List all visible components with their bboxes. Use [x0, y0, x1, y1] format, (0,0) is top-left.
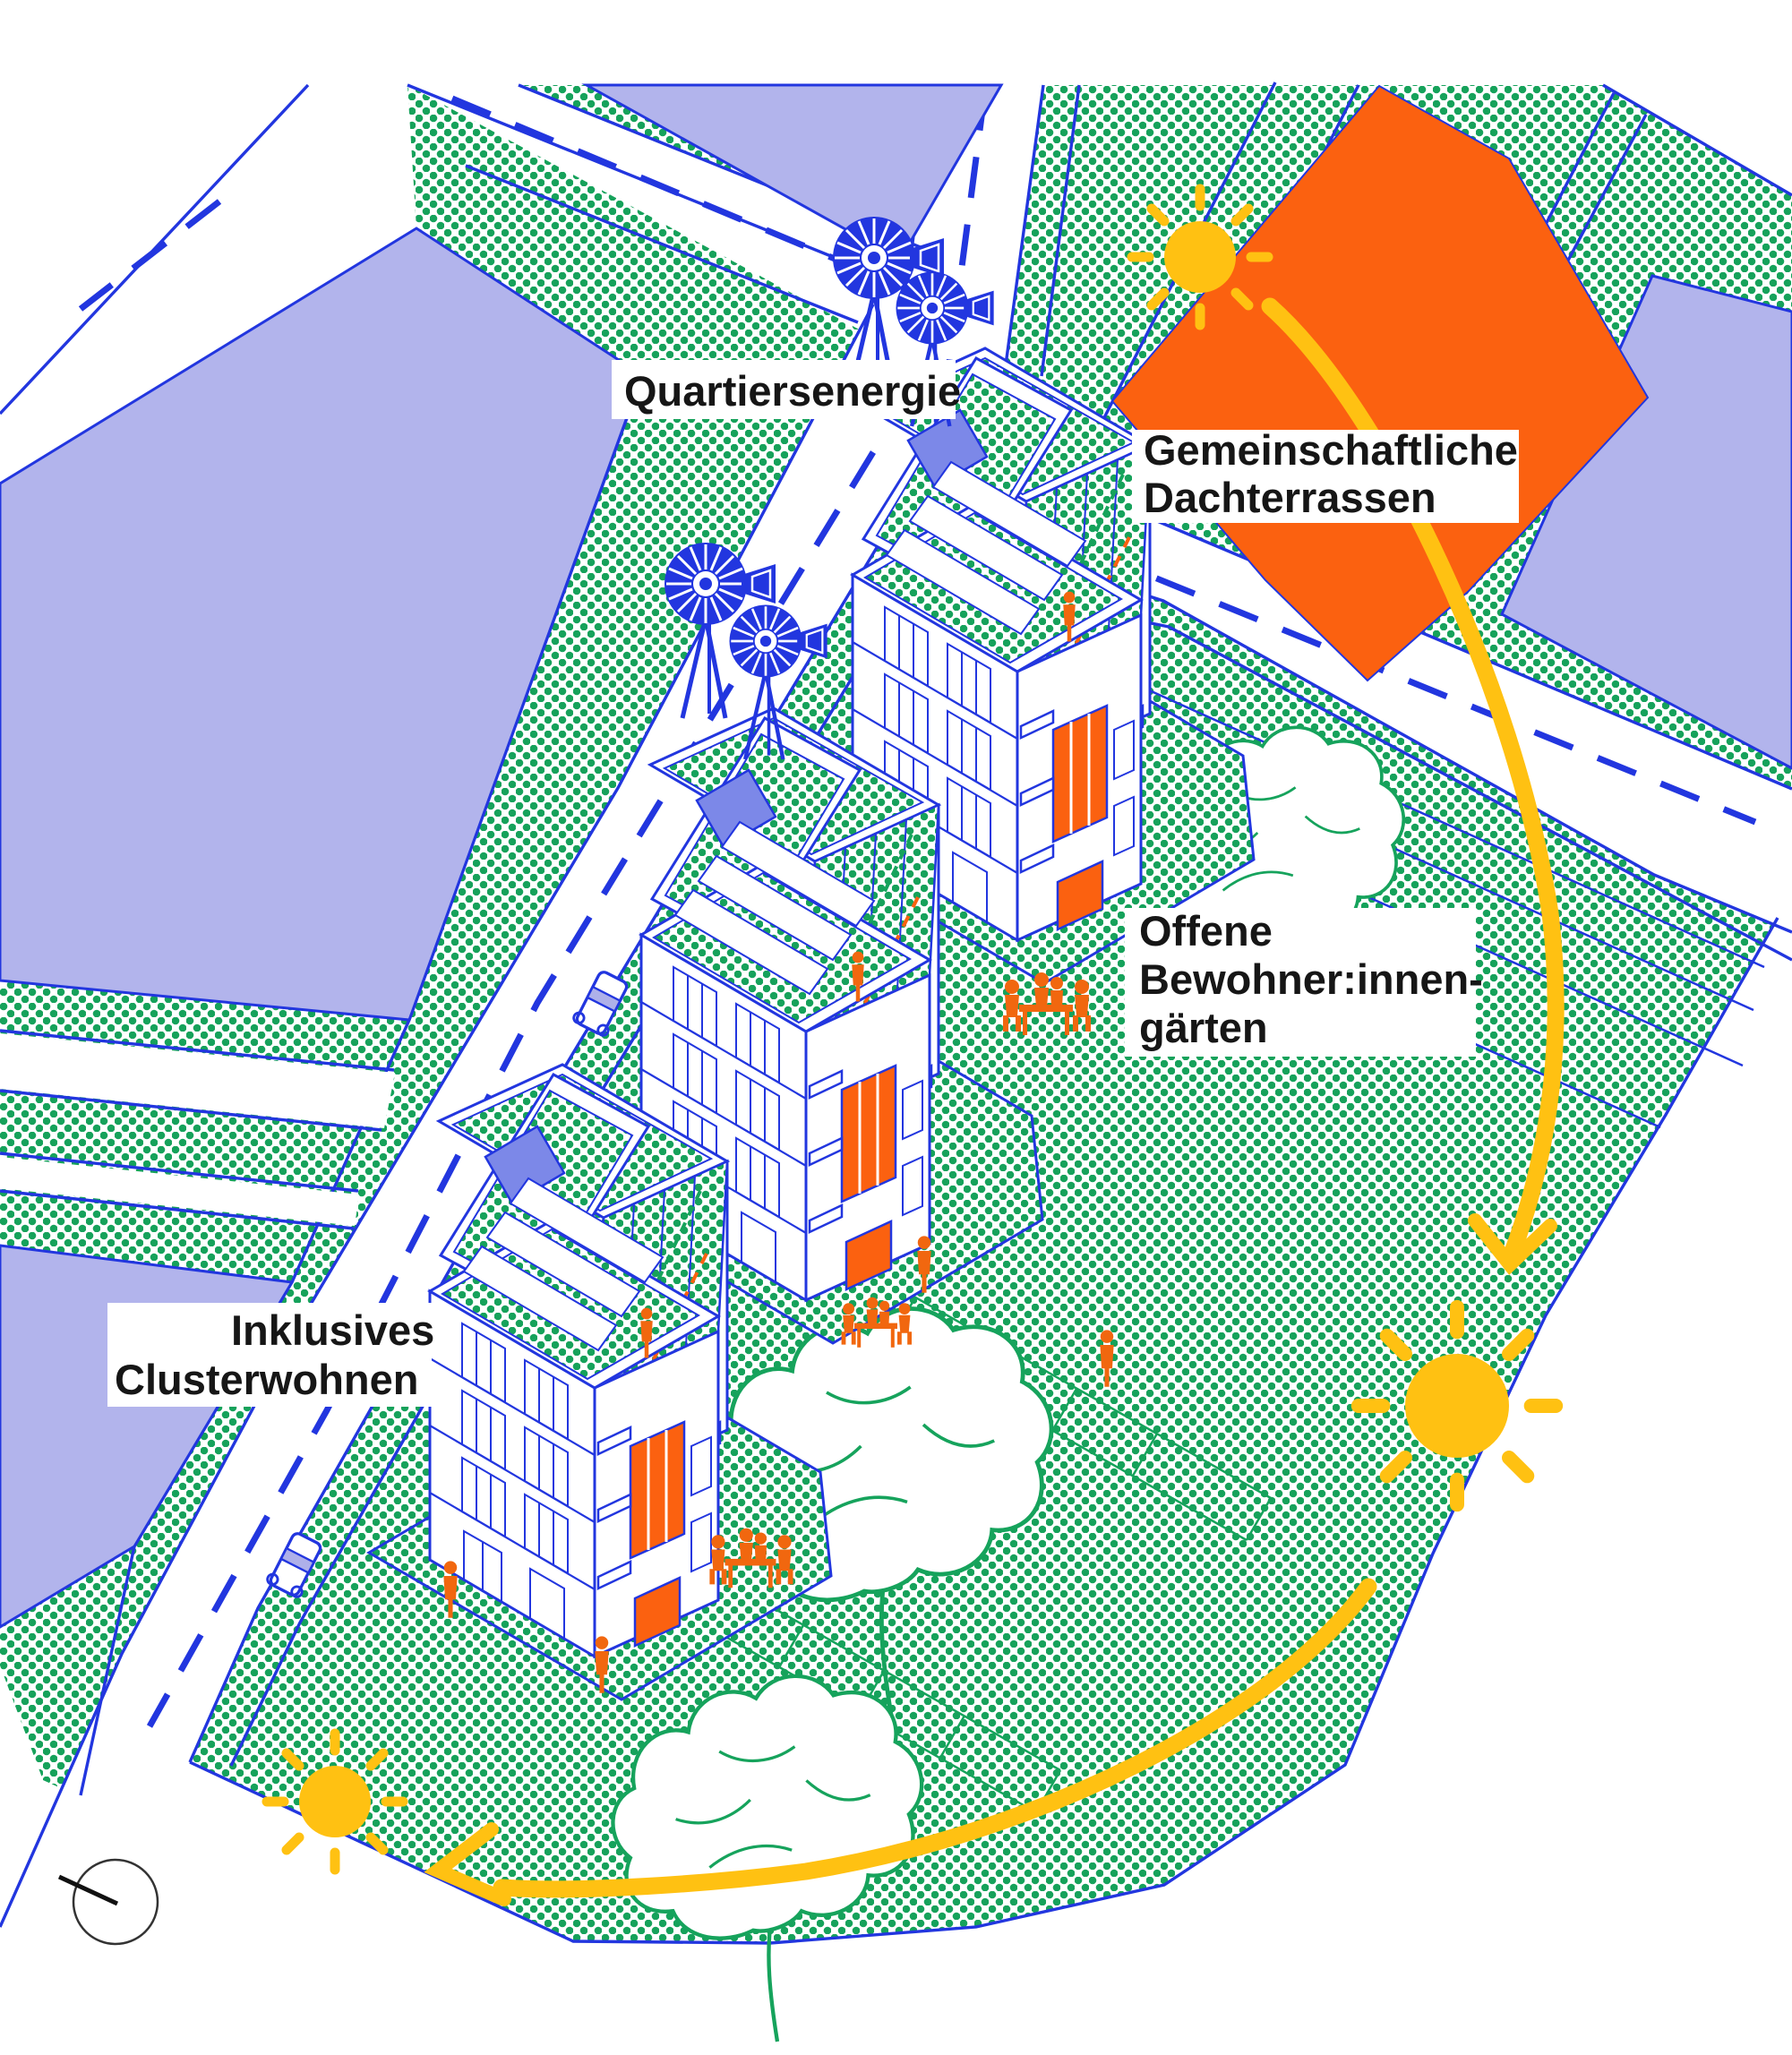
- svg-text:Offene: Offene: [1139, 907, 1273, 955]
- svg-text:Gemeinschaftliche: Gemeinschaftliche: [1144, 426, 1518, 474]
- svg-text:Bewohner:innen-: Bewohner:innen-: [1139, 955, 1483, 1003]
- svg-text:Clusterwohnen: Clusterwohnen: [115, 1356, 418, 1403]
- svg-text:Inklusives: Inklusives: [231, 1306, 434, 1354]
- svg-text:Quartiersenergie: Quartiersenergie: [624, 367, 961, 415]
- svg-text:gärten: gärten: [1139, 1004, 1268, 1051]
- svg-text:Dachterrassen: Dachterrassen: [1144, 474, 1436, 521]
